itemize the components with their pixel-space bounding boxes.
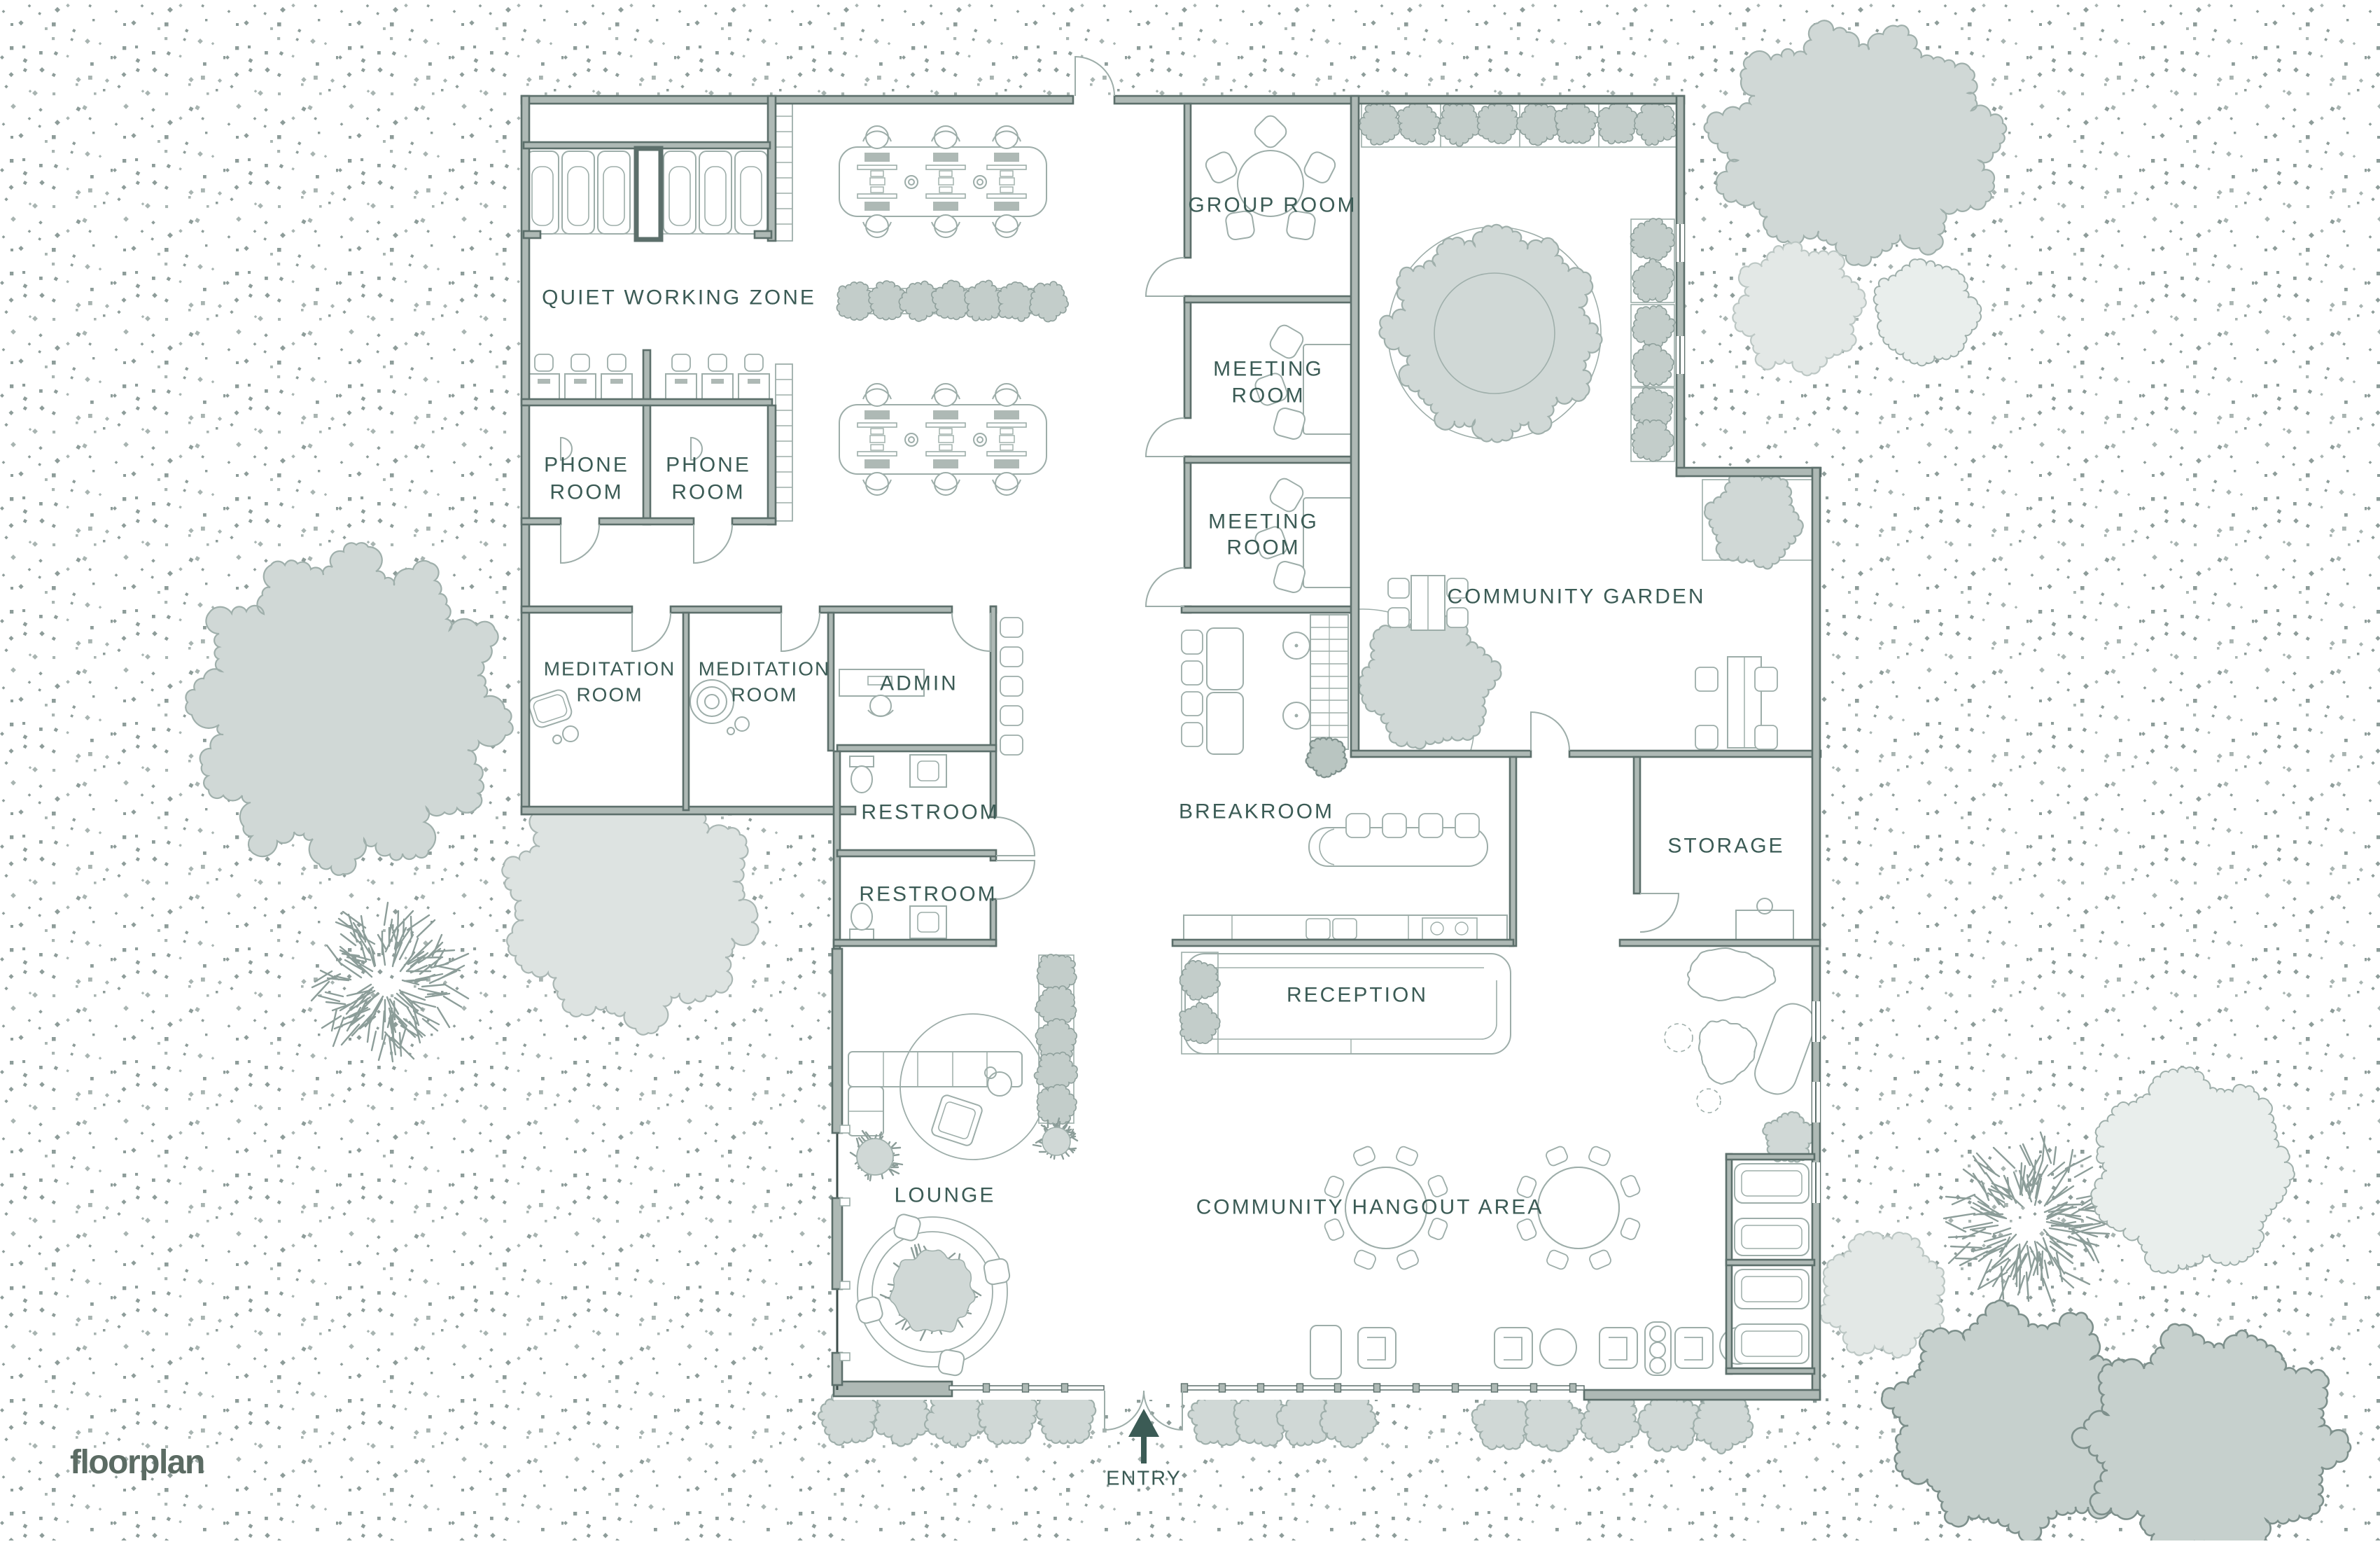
- svg-text:MEDITATION: MEDITATION: [699, 658, 831, 680]
- svg-text:RECEPTION: RECEPTION: [1287, 984, 1428, 1007]
- svg-text:ROOM: ROOM: [671, 481, 745, 504]
- svg-text:PHONE: PHONE: [666, 454, 751, 477]
- svg-text:ADMIN: ADMIN: [880, 672, 958, 695]
- svg-text:COMMUNITY GARDEN: COMMUNITY GARDEN: [1447, 585, 1705, 608]
- svg-text:COMMUNITY HANGOUT AREA: COMMUNITY HANGOUT AREA: [1196, 1196, 1544, 1219]
- svg-text:LOUNGE: LOUNGE: [895, 1184, 996, 1207]
- svg-text:ROOM: ROOM: [1226, 536, 1300, 559]
- svg-text:RESTROOM: RESTROOM: [861, 801, 999, 824]
- svg-text:ENTRY: ENTRY: [1106, 1468, 1182, 1490]
- svg-text:ROOM: ROOM: [731, 684, 797, 706]
- svg-text:ROOM: ROOM: [576, 684, 643, 706]
- svg-text:GROUP ROOM: GROUP ROOM: [1188, 194, 1357, 217]
- svg-text:ROOM: ROOM: [1231, 384, 1305, 408]
- svg-text:MEETING: MEETING: [1213, 358, 1324, 381]
- svg-text:MEDITATION: MEDITATION: [544, 658, 676, 680]
- svg-text:MEETING: MEETING: [1208, 510, 1319, 534]
- svg-text:RESTROOM: RESTROOM: [859, 883, 997, 906]
- svg-text:PHONE: PHONE: [544, 454, 629, 477]
- svg-text:QUIET WORKING ZONE: QUIET WORKING ZONE: [542, 286, 816, 310]
- svg-text:ROOM: ROOM: [549, 481, 623, 504]
- svg-text:STORAGE: STORAGE: [1667, 835, 1784, 858]
- svg-text:BREAKROOM: BREAKROOM: [1179, 800, 1334, 823]
- svg-text:floorplan: floorplan: [70, 1444, 204, 1481]
